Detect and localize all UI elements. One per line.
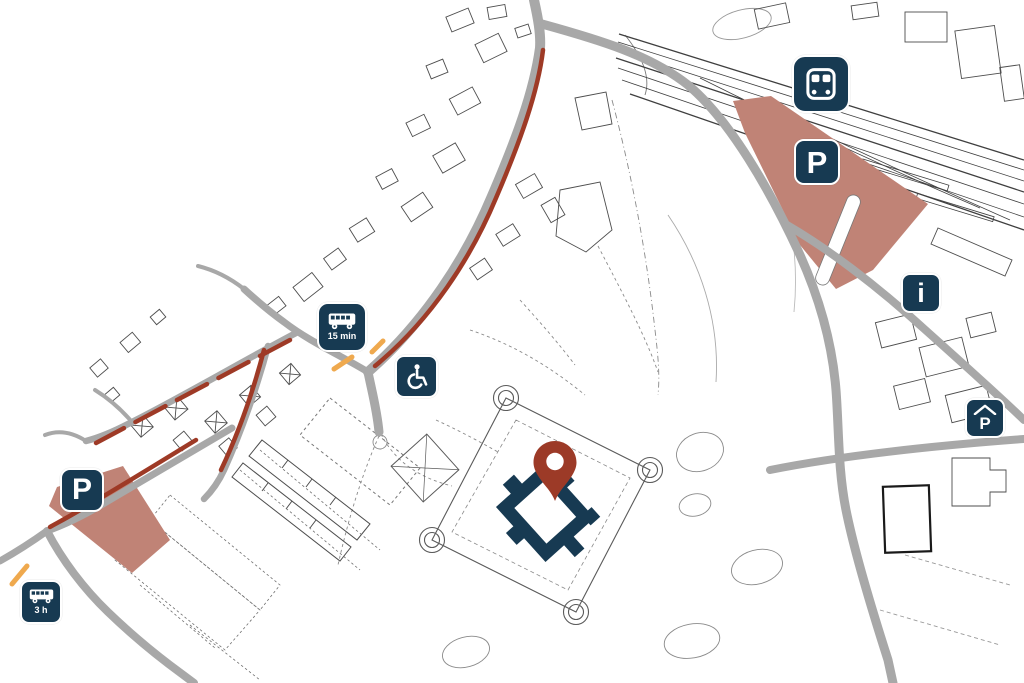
parking-west-marker[interactable]: P [60,468,104,512]
train-icon [806,67,836,101]
fortress-walls [391,386,662,625]
road-branch-west-thin [198,266,244,289]
parade-grounds [115,450,380,680]
palace-complex [232,398,420,561]
bus-stop-north-marker[interactable]: 15 min [317,302,367,352]
road-southeast [770,439,1024,470]
road-northeast [542,24,893,683]
terrain-and-paths [338,3,1010,673]
wheelchair-icon [403,363,430,390]
route-main [375,50,543,366]
road-main-northwest [368,0,540,372]
parking-icon: P [807,147,828,178]
info-icon: i [917,280,925,307]
walking-route [50,50,543,527]
bus-time-label: 15 min [328,332,357,341]
bus-stop-west-marker[interactable]: 3 h [20,580,62,624]
accessible-entrance-marker[interactable] [395,355,438,398]
covered-parking-marker[interactable]: P [965,398,1005,438]
bus-time-label: 3 h [34,606,47,615]
map-canvas [0,0,1024,683]
stop-highlights [12,341,383,584]
castle-access-map: P i P 15 min P [0,0,1024,683]
bus-icon [328,313,356,330]
parking-station-marker[interactable]: P [794,139,840,185]
info-point-marker[interactable]: i [901,273,941,313]
parking-icon: P [72,475,92,505]
road-southwest-left [0,531,47,561]
building-bold-rect [883,485,931,553]
road-castle-stub [368,372,379,432]
parking-letter: P [979,415,990,432]
train-station-marker[interactable] [792,55,850,113]
bus-icon [29,589,54,604]
